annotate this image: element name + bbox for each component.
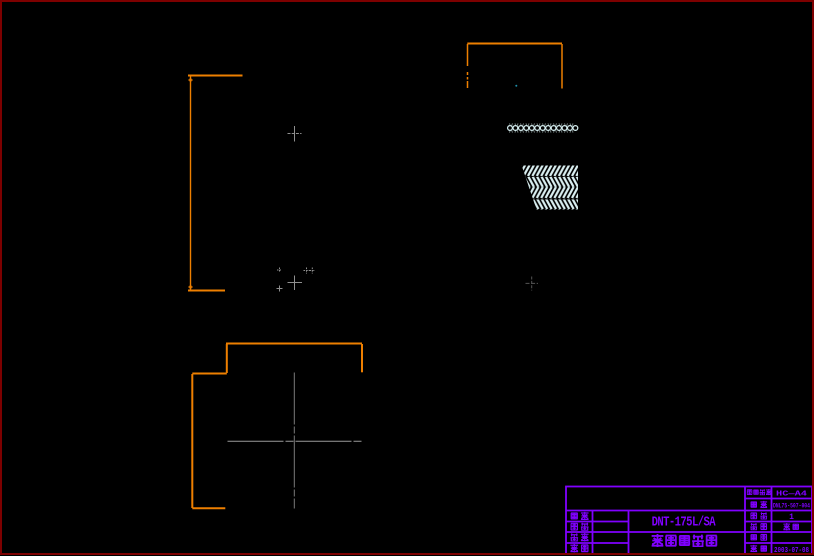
svg-text:HC—A4: HC—A4: [776, 490, 808, 498]
svg-text:DNL75-507-004: DNL75-507-004: [773, 502, 810, 509]
svg-text:DNT-175L/SA: DNT-175L/SA: [652, 514, 717, 530]
svg-text:1: 1: [789, 513, 794, 522]
